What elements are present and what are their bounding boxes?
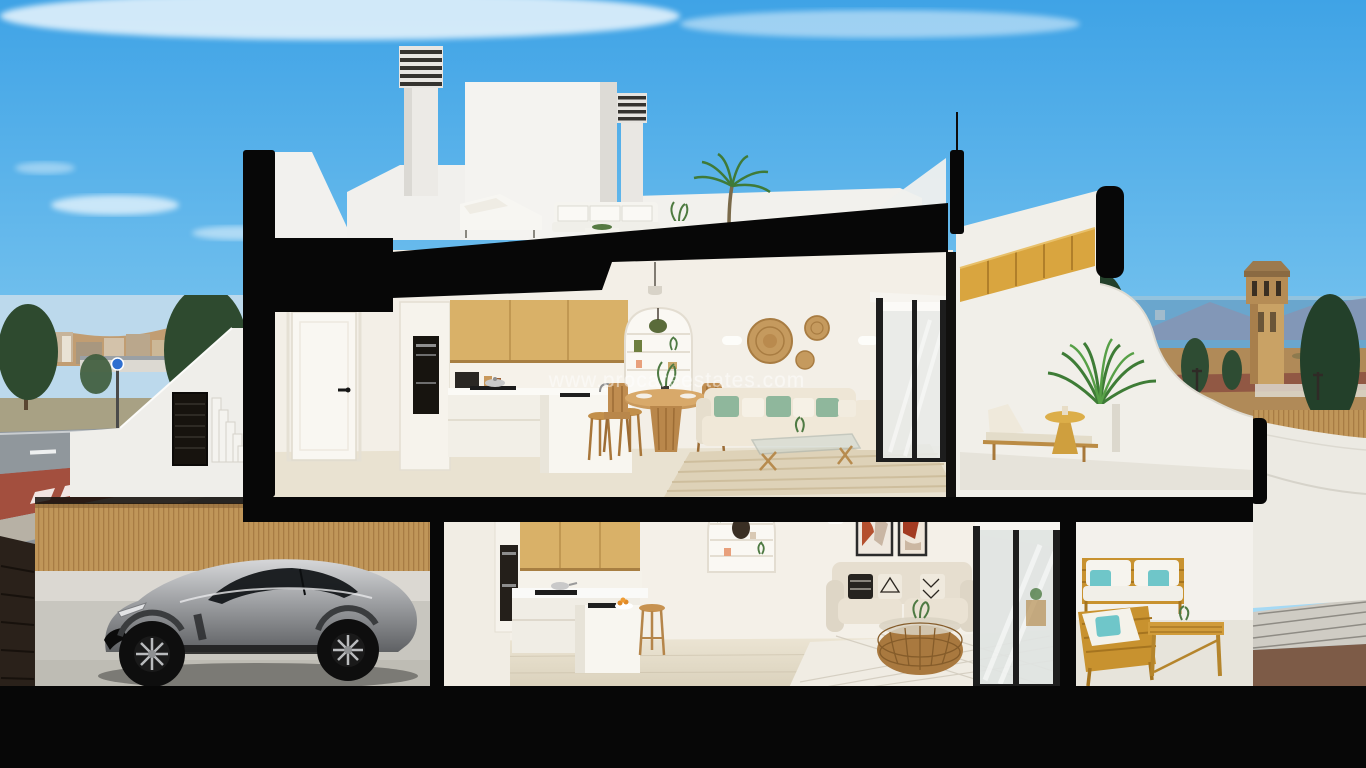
sink xyxy=(588,603,616,608)
rear-wheel xyxy=(317,619,379,681)
coffee-machine xyxy=(455,372,479,388)
kitchen-ground xyxy=(495,518,665,673)
roof-slab-step xyxy=(273,238,393,312)
stair-wall-cut xyxy=(1096,186,1124,278)
counter-ground xyxy=(512,588,648,598)
chimney-right-vent-cap xyxy=(617,93,647,123)
upper-cabinets-ground xyxy=(520,518,640,570)
pendant-light xyxy=(648,286,662,295)
watermark: www.procareestates.com xyxy=(549,369,806,393)
sliding-door-ground xyxy=(973,522,1060,690)
front-wheel xyxy=(119,621,185,687)
chimney-left-vent-cap xyxy=(399,46,443,88)
rattan-wall-basket-small xyxy=(796,351,814,369)
balustrade-post-cut xyxy=(950,150,964,234)
wall-cut-divider xyxy=(1060,522,1076,692)
chimney-left xyxy=(399,46,443,196)
left-wall-cut xyxy=(243,150,275,497)
patterned-pillows xyxy=(848,574,945,599)
wall-sconce-upper-left xyxy=(722,336,742,345)
entry-door xyxy=(288,308,360,460)
watch-tower xyxy=(1244,261,1290,384)
rattan-wall-basket-medium xyxy=(805,316,829,340)
kitchen-island-ground xyxy=(575,598,640,674)
hob xyxy=(535,590,577,595)
upper-cabinets xyxy=(450,300,628,362)
sign-pole xyxy=(116,366,119,428)
round-traffic-sign xyxy=(112,358,124,370)
oven-tower xyxy=(413,336,439,414)
green-pendant xyxy=(649,319,667,333)
outdoor-pavers xyxy=(1253,598,1366,700)
chimney-right xyxy=(617,93,647,202)
sliding-door-upper xyxy=(870,292,948,462)
render-canvas: www.procareestates.com xyxy=(0,0,1366,768)
wall-sconce-upper-right xyxy=(858,336,878,345)
ground-cut-band xyxy=(0,686,1366,768)
patio-ground xyxy=(1076,500,1253,692)
